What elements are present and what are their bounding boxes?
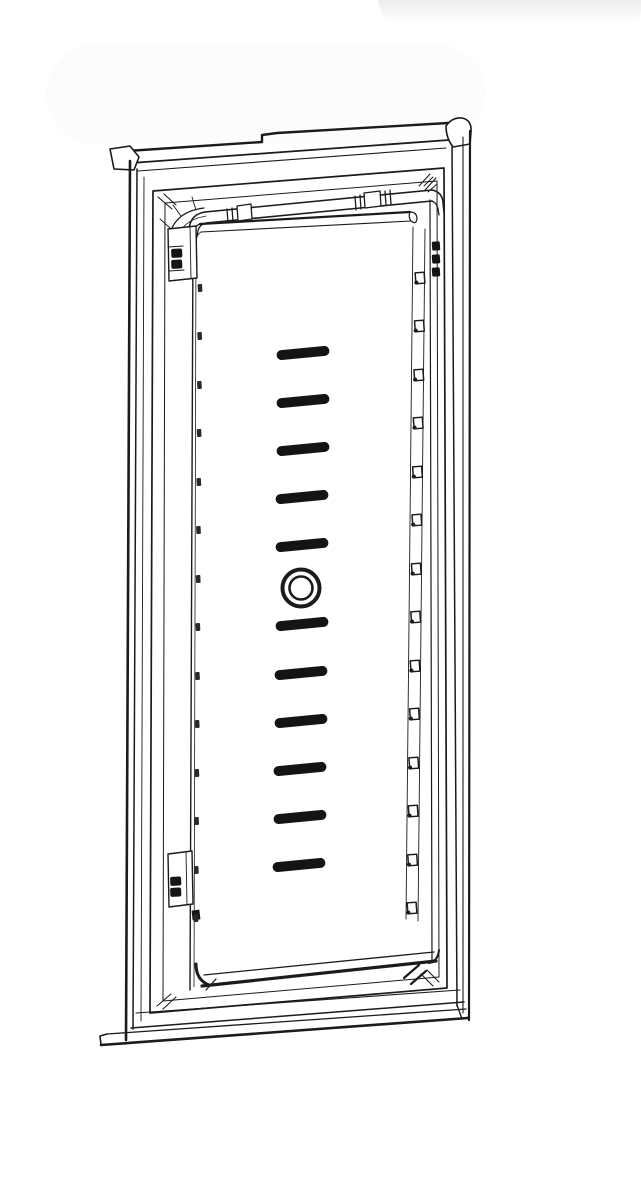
center-hole-layer	[283, 570, 320, 607]
figure-canvas	[0, 0, 641, 1200]
vent-slots-layer	[272, 345, 330, 872]
edge-clip	[432, 241, 441, 251]
left-edge-tick	[197, 332, 202, 340]
bracket-clip	[170, 876, 181, 886]
top-right-clips-layer	[432, 241, 441, 277]
vent-slot	[273, 809, 327, 824]
vent-slot	[275, 616, 329, 631]
vent-slot	[276, 345, 330, 360]
door-left-edge-inner	[133, 169, 137, 1029]
vent-slot	[273, 761, 327, 776]
tube-right-elbow2	[432, 201, 439, 215]
vent-slot	[272, 857, 326, 872]
liner-bottom-band	[202, 961, 436, 986]
left-edge-tick	[194, 866, 199, 874]
edge-hole	[409, 611, 420, 624]
liner-bottom-right-miters	[404, 965, 426, 984]
left-edge-tick	[196, 526, 201, 534]
edge-hole	[406, 854, 417, 867]
vent-slot	[275, 489, 329, 504]
edge-hole	[407, 805, 418, 818]
edge-hole	[408, 708, 419, 721]
edge-clip	[432, 267, 441, 277]
liner-top-band-cap	[409, 212, 417, 223]
bracket-clips-layer	[170, 248, 182, 897]
edge-hole	[406, 902, 417, 915]
edge-clip	[432, 254, 441, 264]
left-edge-tick	[194, 769, 199, 777]
bracket-clip	[170, 887, 181, 897]
edge-hole	[410, 563, 421, 576]
edge-hole	[412, 369, 423, 382]
tube-right-connector	[364, 191, 381, 208]
bracket-clip	[171, 248, 182, 258]
left-edge-tick	[194, 817, 199, 825]
door-right-edge-inner2	[452, 147, 457, 1006]
edge-hole	[409, 660, 420, 673]
edge-holes-layer	[406, 272, 425, 915]
left-edge-tick	[196, 575, 201, 583]
vent-slot	[276, 393, 330, 408]
vent-slot	[274, 665, 328, 680]
vent-slot	[274, 713, 328, 728]
left-edge-tick	[195, 720, 200, 728]
left-edge-tick	[195, 623, 200, 631]
edge-hole	[413, 320, 424, 333]
edge-hole	[410, 514, 421, 527]
edge-hole	[414, 272, 425, 285]
center-hole-outer-ring	[283, 570, 320, 607]
door-top-right-cap	[446, 118, 471, 147]
edge-hole	[407, 757, 418, 770]
edge-hole	[412, 417, 423, 430]
door-top-edge	[112, 123, 448, 152]
top-tube-rail	[186, 190, 444, 240]
door-bottom-edge-inner	[131, 1002, 464, 1028]
edge-hole	[411, 466, 422, 479]
door-left-edge-inner2	[141, 177, 144, 1021]
bracket-clip	[171, 259, 182, 269]
left-edge-tick	[195, 672, 200, 680]
left-edge-tick	[198, 284, 203, 292]
left-edge-tick	[194, 914, 199, 922]
door-assembly-drawing	[0, 0, 641, 1200]
liner-right-edge	[430, 200, 432, 963]
door-right-edge	[469, 131, 470, 1020]
vent-slot	[276, 441, 330, 456]
left-edge-tick	[197, 381, 202, 389]
door-left-edge	[126, 161, 130, 1040]
vent-slot	[275, 537, 329, 552]
tube-left-connector	[237, 204, 252, 221]
left-edge-tick	[196, 478, 201, 486]
left-edge-tick	[197, 429, 202, 437]
